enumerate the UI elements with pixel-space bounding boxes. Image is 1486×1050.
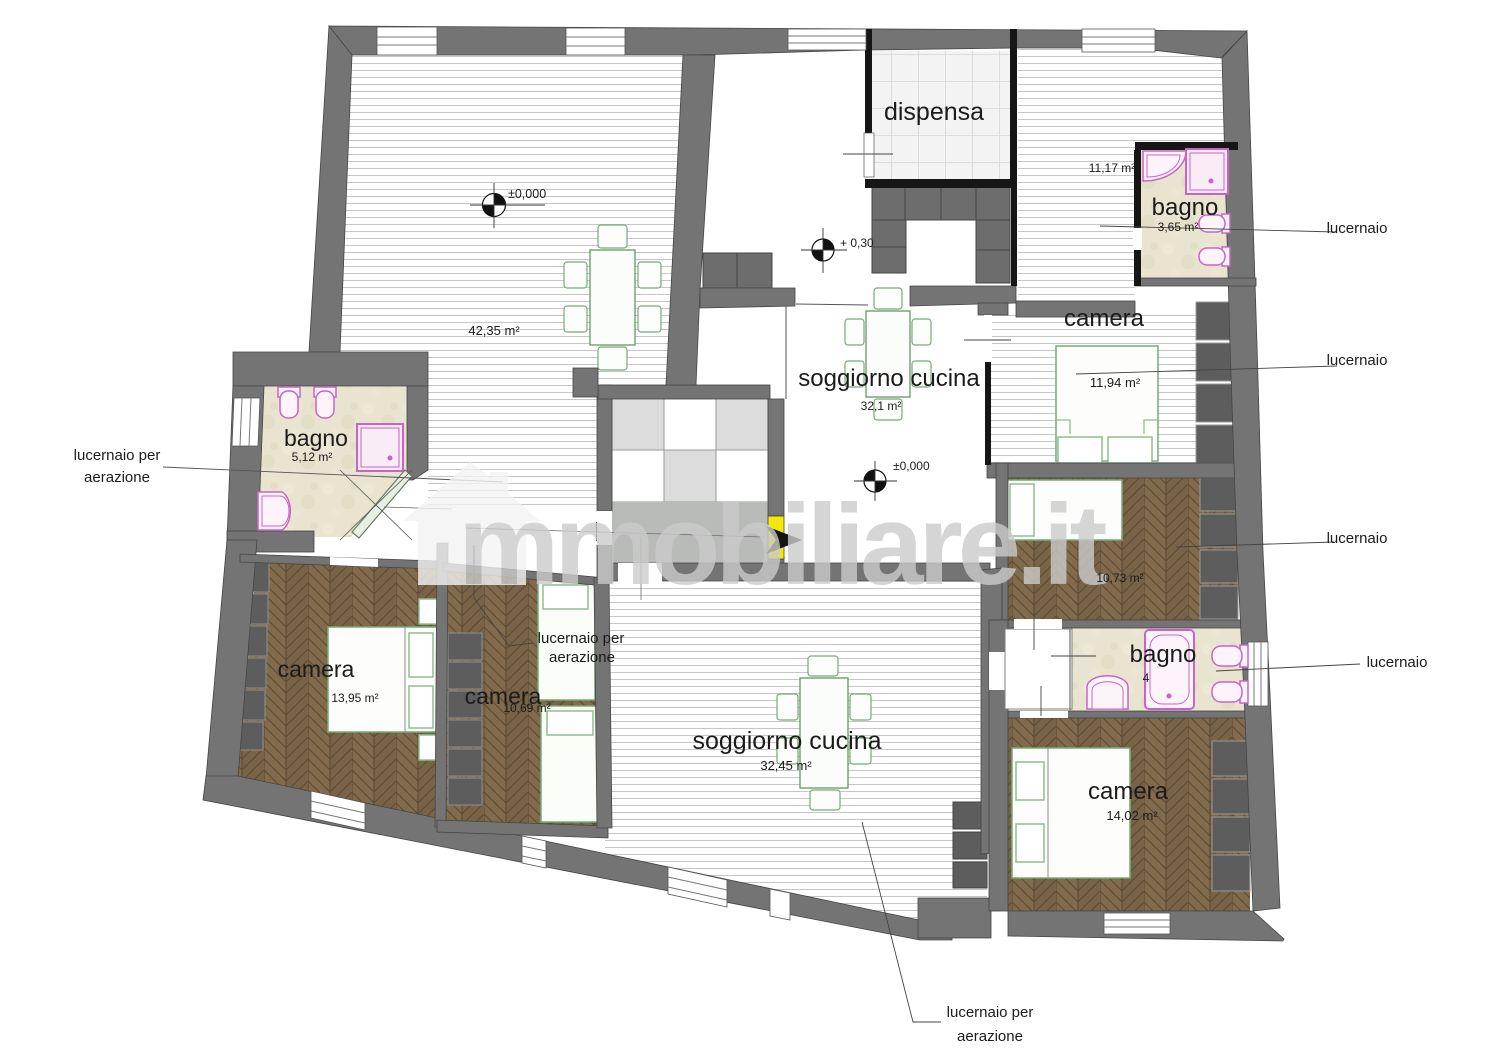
svg-text:camera: camera (1064, 305, 1145, 332)
svg-text:lucernaio: lucernaio (1367, 654, 1428, 671)
svg-text:32,1 m²: 32,1 m² (861, 399, 902, 413)
svg-text:lucernaio: lucernaio (1327, 220, 1388, 237)
svg-text:lucernaio per: lucernaio per (947, 1004, 1034, 1021)
svg-text:10,73 m²: 10,73 m² (1096, 571, 1143, 585)
svg-text:+ 0,30: + 0,30 (840, 236, 874, 250)
svg-text:13,95 m²: 13,95 m² (331, 691, 378, 705)
svg-text:aerazione: aerazione (84, 469, 150, 486)
svg-text:42,35 m²: 42,35 m² (468, 323, 520, 338)
svg-text:14,02 m²: 14,02 m² (1106, 808, 1158, 823)
svg-text:4: 4 (1143, 671, 1150, 685)
svg-text:32,45 m²: 32,45 m² (760, 758, 812, 773)
svg-text:10,69 m²: 10,69 m² (503, 701, 550, 715)
svg-text:3,65 m²: 3,65 m² (1158, 220, 1199, 234)
svg-text:bagno: bagno (1130, 641, 1197, 668)
svg-text:±0,000: ±0,000 (893, 459, 930, 473)
svg-text:soggiorno cucina: soggiorno cucina (692, 727, 881, 755)
svg-text:mmobiliare.it: mmobiliare.it (458, 482, 1107, 609)
svg-text:5,12 m²: 5,12 m² (292, 450, 333, 464)
svg-text:dispensa: dispensa (884, 98, 984, 126)
svg-text:camera: camera (278, 656, 355, 682)
svg-text:aerazione: aerazione (957, 1028, 1023, 1045)
svg-text:camera: camera (1088, 778, 1169, 805)
svg-text:lucernaio: lucernaio (1327, 530, 1388, 547)
svg-text:soggiorno cucina: soggiorno cucina (798, 365, 980, 392)
svg-text:lucernaio per: lucernaio per (538, 630, 625, 647)
svg-text:±0,000: ±0,000 (508, 187, 546, 201)
svg-text:bagno: bagno (1152, 194, 1219, 221)
svg-text:bagno: bagno (284, 425, 348, 451)
svg-text:lucernaio per: lucernaio per (74, 447, 161, 464)
svg-text:11,94 m²: 11,94 m² (1090, 375, 1141, 390)
svg-text:lucernaio: lucernaio (1327, 352, 1388, 369)
svg-text:11,17 m²: 11,17 m² (1089, 161, 1135, 175)
svg-text:aerazione: aerazione (549, 649, 615, 666)
